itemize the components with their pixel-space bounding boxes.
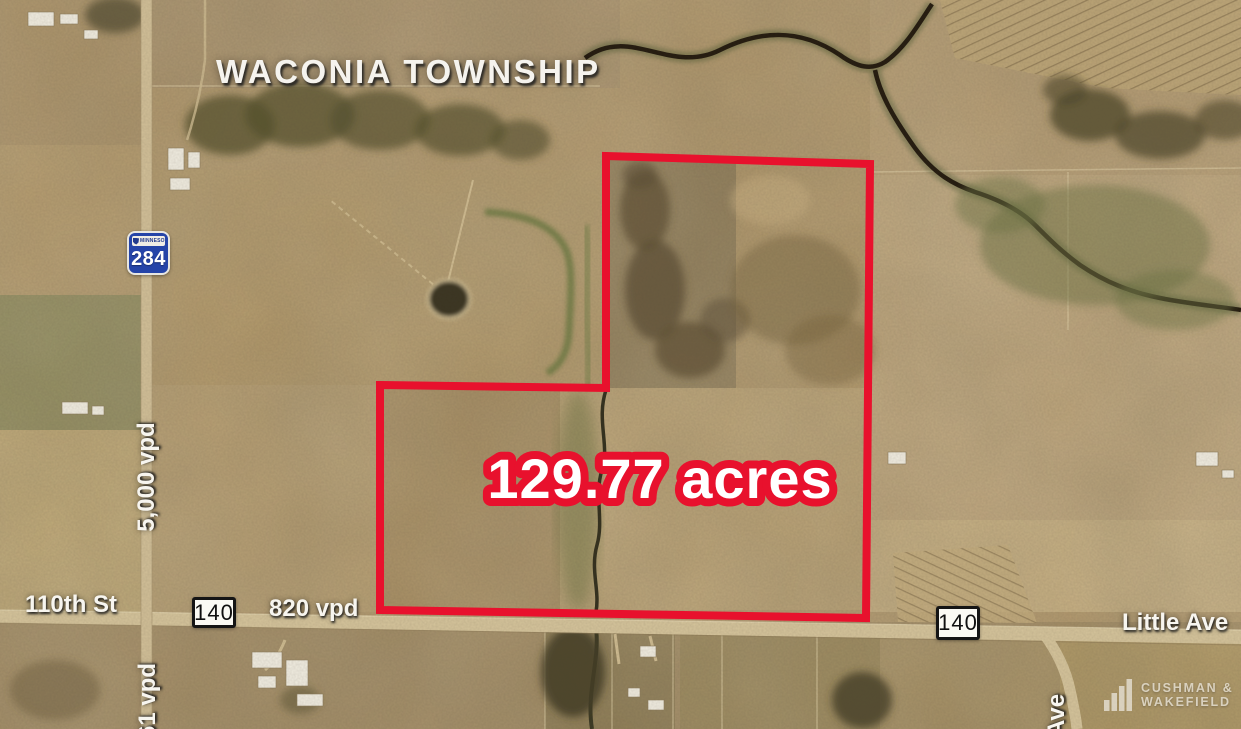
traffic-count-61-vpd: 61 vpd	[136, 663, 160, 729]
traffic-count-820-vpd: 820 vpd	[269, 597, 358, 621]
minnesota-state-icon	[133, 238, 139, 245]
watermark-text: CUSHMAN & WAKEFIELD	[1141, 681, 1234, 710]
road-label-110th-st: 110th St	[25, 593, 117, 617]
watermark-line2: WAKEFIELD	[1141, 695, 1234, 709]
county-road-140-badge-west: 140	[192, 597, 236, 628]
svg-text:129.77 acres: 129.77 acres	[487, 447, 832, 510]
acreage-label: 129.77 acres	[450, 430, 870, 525]
watermark-line1: CUSHMAN &	[1141, 681, 1234, 695]
traffic-count-5000-vpd: 5,000 vpd	[135, 422, 159, 531]
cushman-wakefield-bars-icon	[1104, 679, 1134, 711]
aerial-photo-background	[0, 0, 1241, 729]
shield-state-text: MINNESOTA	[140, 239, 165, 244]
shield-route-number: 284	[129, 246, 168, 273]
cushman-wakefield-watermark: CUSHMAN & WAKEFIELD	[1104, 679, 1234, 711]
county-road-140-badge-east: 140	[936, 606, 980, 640]
aerial-map-screenshot: WACONIA TOWNSHIP 129.77 acres 110th St 8…	[0, 0, 1241, 729]
road-label-little-ave-vertical: Little Ave	[1045, 694, 1069, 729]
shield-state-band: MINNESOTA	[132, 236, 165, 246]
road-label-little-ave: Little Ave	[1122, 611, 1228, 635]
mn-highway-284-shield: MINNESOTA 284	[127, 231, 170, 275]
township-label: WACONIA TOWNSHIP	[216, 55, 601, 88]
